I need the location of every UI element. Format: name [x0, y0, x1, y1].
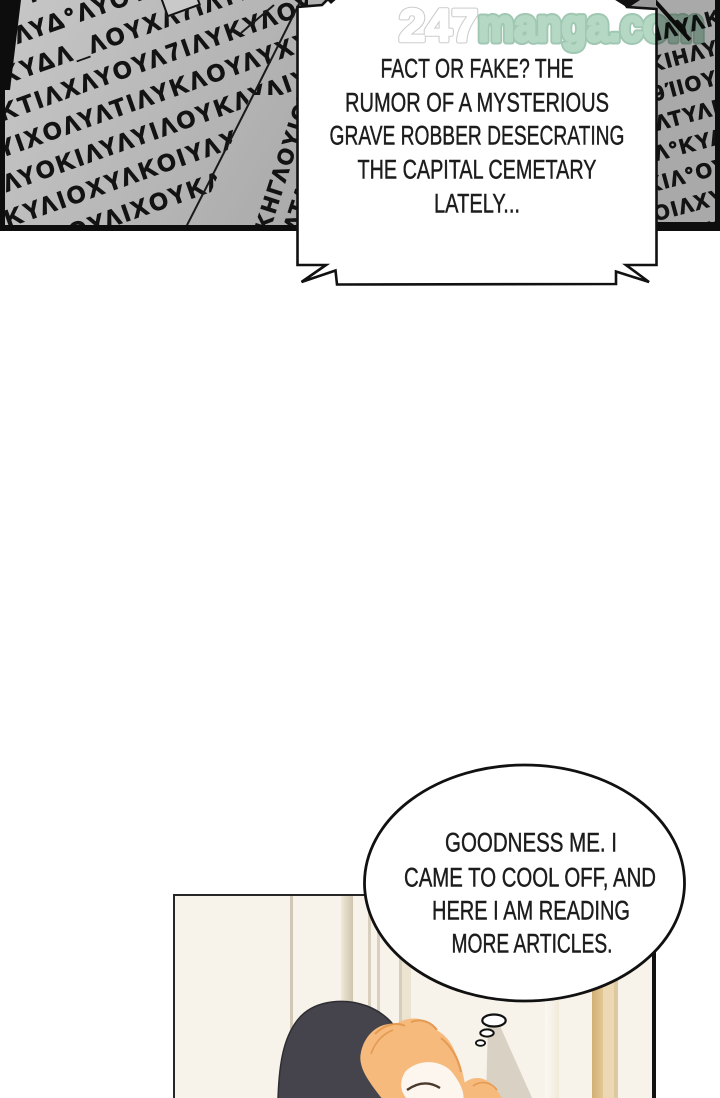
svg-text:MORE ARTICLES.: MORE ARTICLES. [452, 929, 613, 959]
svg-text:HERE I AM READING: HERE I AM READING [432, 896, 630, 926]
svg-text:GOODNESS ME. I: GOODNESS ME. I [445, 828, 617, 858]
svg-text:CAME TO COOL OFF, AND: CAME TO COOL OFF, AND [404, 863, 656, 893]
